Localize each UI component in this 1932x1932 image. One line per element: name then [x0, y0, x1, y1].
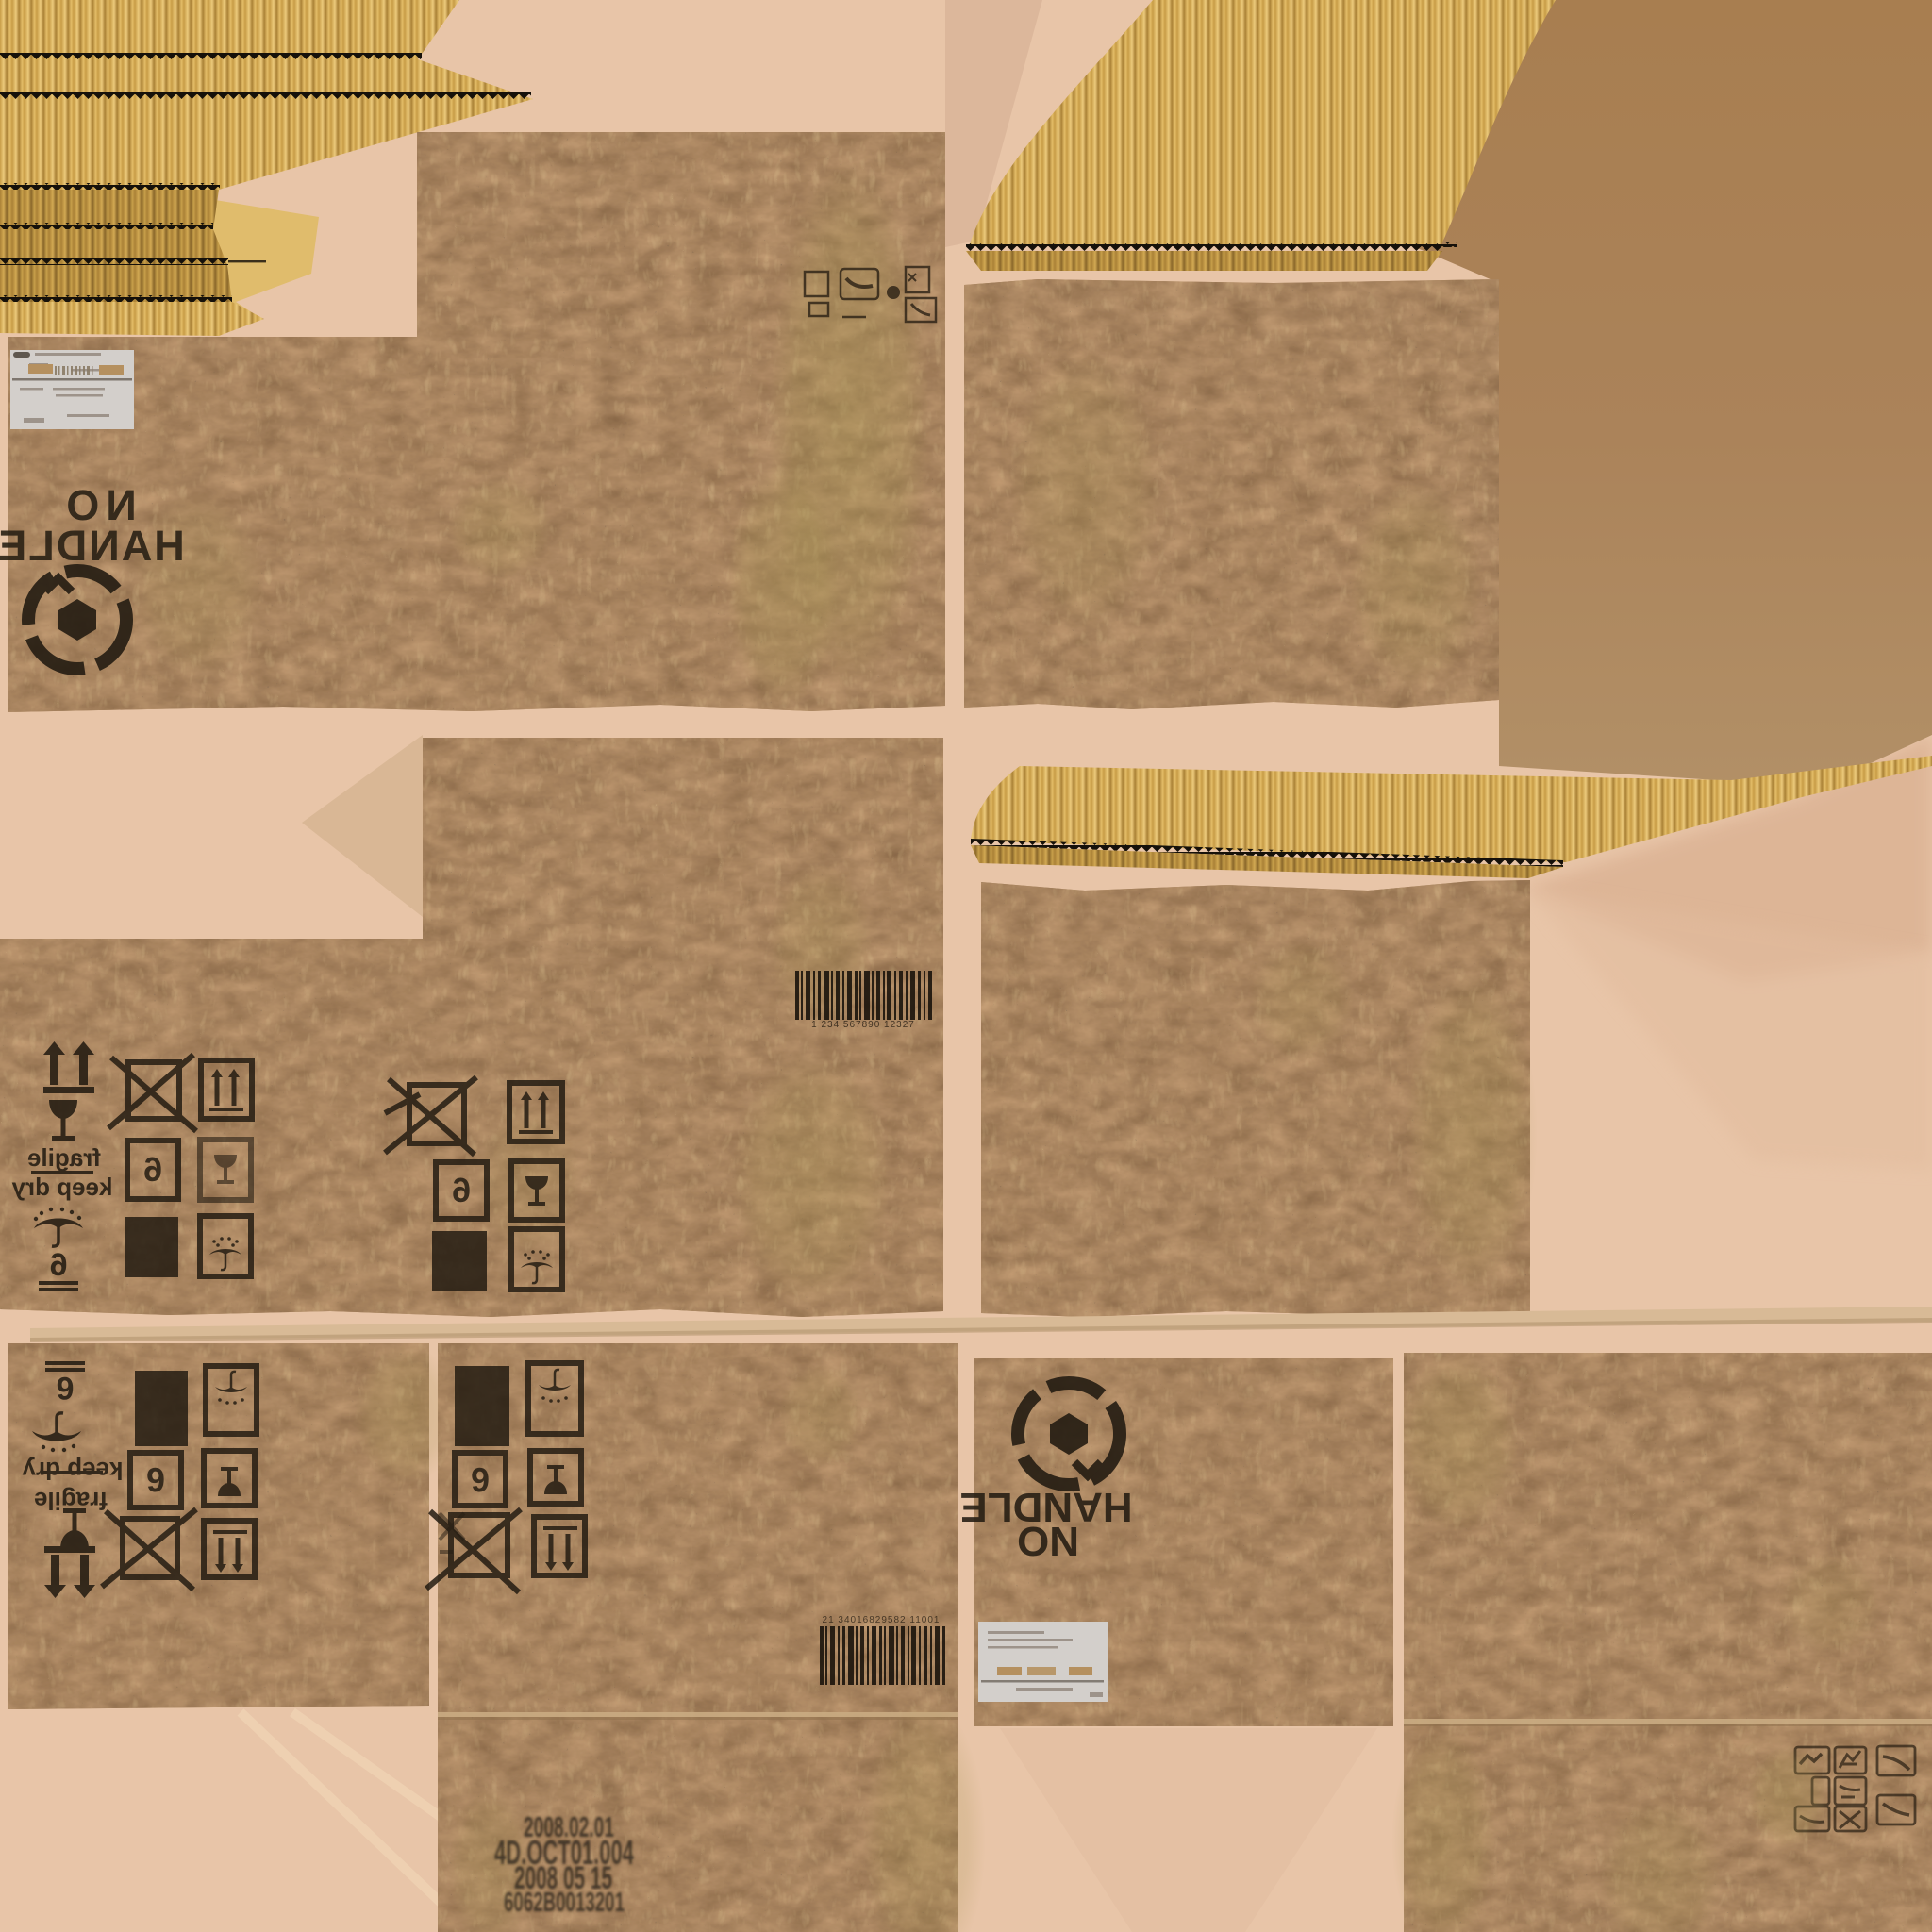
svg-text:6: 6: [471, 1460, 490, 1499]
svg-text:fragile: fragile: [27, 1143, 101, 1172]
svg-text:6: 6: [452, 1171, 471, 1209]
svg-text:NO: NO: [1017, 1518, 1079, 1564]
svg-text:HANDLE: HANDLE: [0, 522, 185, 570]
svg-text:keep dry: keep dry: [11, 1173, 112, 1201]
svg-text:6: 6: [143, 1150, 162, 1189]
svg-text:6: 6: [50, 1247, 68, 1283]
svg-text:6: 6: [57, 1370, 75, 1406]
svg-text:21 34016829582 11001: 21 34016829582 11001: [823, 1615, 941, 1625]
svg-text:6: 6: [146, 1460, 165, 1499]
svg-text:6062B0013201: 6062B0013201: [504, 1888, 625, 1918]
svg-text:1 234 567890 12327: 1 234 567890 12327: [811, 1020, 915, 1030]
